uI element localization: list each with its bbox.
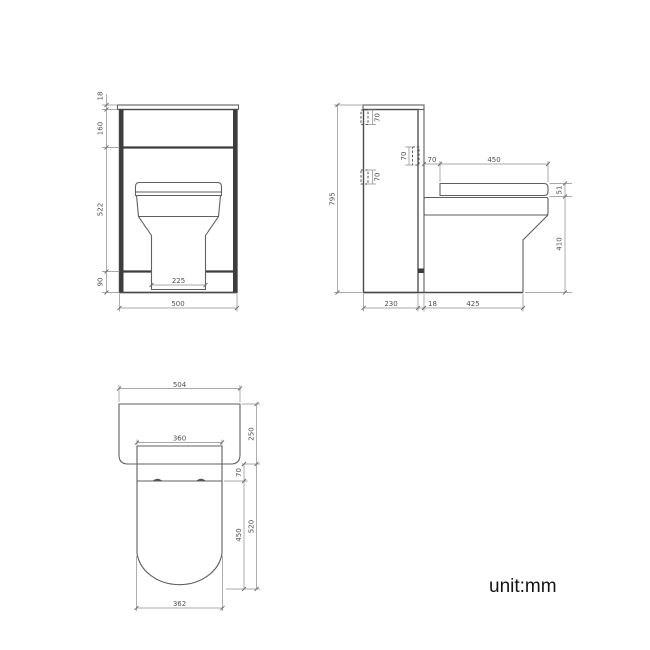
plan-dimension-lines <box>119 389 257 609</box>
side-back-panel-outline <box>418 110 424 293</box>
side-dimension-lines <box>338 105 566 308</box>
dim-side-top-bracket: 70 <box>374 113 382 122</box>
dim-side-overall-height: 795 <box>329 192 337 205</box>
front-seat-outline <box>136 183 222 196</box>
side-extension-lines <box>334 105 572 312</box>
plan-extension-lines <box>119 385 260 611</box>
side-mid-bracket <box>361 170 368 184</box>
plan-hinge-right <box>196 479 206 481</box>
front-view: 18 160 522 90 500 225 <box>97 92 240 312</box>
front-dimension-lines <box>107 94 238 308</box>
dim-side-seat-depth: 450 <box>487 156 500 164</box>
dim-plan-counter-depth: 250 <box>248 427 256 440</box>
plan-view: 504 250 360 70 450 520 362 <box>117 381 260 611</box>
drawing-svg: 18 160 522 90 500 225 795 70 70 70 70 45… <box>0 0 650 650</box>
side-view: 795 70 70 70 70 450 51 410 230 18 425 <box>329 103 573 312</box>
side-seat-outline <box>440 184 548 196</box>
side-pan-front-outline <box>523 215 548 293</box>
dim-front-countertop-thickness: 18 <box>97 92 105 101</box>
dim-front-overall-width: 500 <box>171 300 184 308</box>
dim-front-pedestal-width: 225 <box>172 277 185 285</box>
plan-hinge-left <box>153 479 163 481</box>
dim-side-pan-height: 410 <box>556 237 564 250</box>
dim-side-panel-bracket: 70 <box>400 152 408 161</box>
dim-side-panel-thickness: 18 <box>428 300 437 308</box>
front-right-side-panel <box>233 110 237 293</box>
side-rim-outline <box>424 198 548 216</box>
dim-plan-total-projection: 520 <box>248 520 256 533</box>
side-panel-plinth-joint <box>418 269 424 274</box>
unit-note: unit:mm <box>489 576 557 597</box>
dim-front-body-height: 522 <box>97 203 105 216</box>
technical-drawing-page: 18 160 522 90 500 225 795 70 70 70 70 45… <box>0 0 650 650</box>
plan-dimension-ticks <box>117 387 259 611</box>
dim-side-seat-setback: 70 <box>428 156 437 164</box>
dim-plan-hinge-offset: 70 <box>235 468 243 477</box>
side-cabinet-outline <box>364 110 419 293</box>
side-dimension-ticks <box>336 103 568 310</box>
side-top-bracket <box>361 110 368 125</box>
front-left-side-panel <box>120 110 124 293</box>
dim-plan-counter-width: 504 <box>173 381 187 389</box>
dim-front-plinth-height: 90 <box>97 278 105 287</box>
dim-side-pan-projection: 425 <box>466 300 479 308</box>
dim-side-cabinet-depth: 230 <box>384 300 397 308</box>
plan-seat-outline <box>137 446 222 585</box>
front-pan-outline <box>137 196 221 290</box>
dim-side-mid-bracket: 70 <box>374 173 382 182</box>
dim-plan-pan-width: 362 <box>173 600 186 608</box>
dim-plan-seat-length: 450 <box>235 528 243 541</box>
dim-side-seat-thickness: 51 <box>556 186 564 195</box>
dim-front-upper-panel-height: 160 <box>97 122 105 135</box>
dim-plan-seat-width: 360 <box>173 435 186 443</box>
